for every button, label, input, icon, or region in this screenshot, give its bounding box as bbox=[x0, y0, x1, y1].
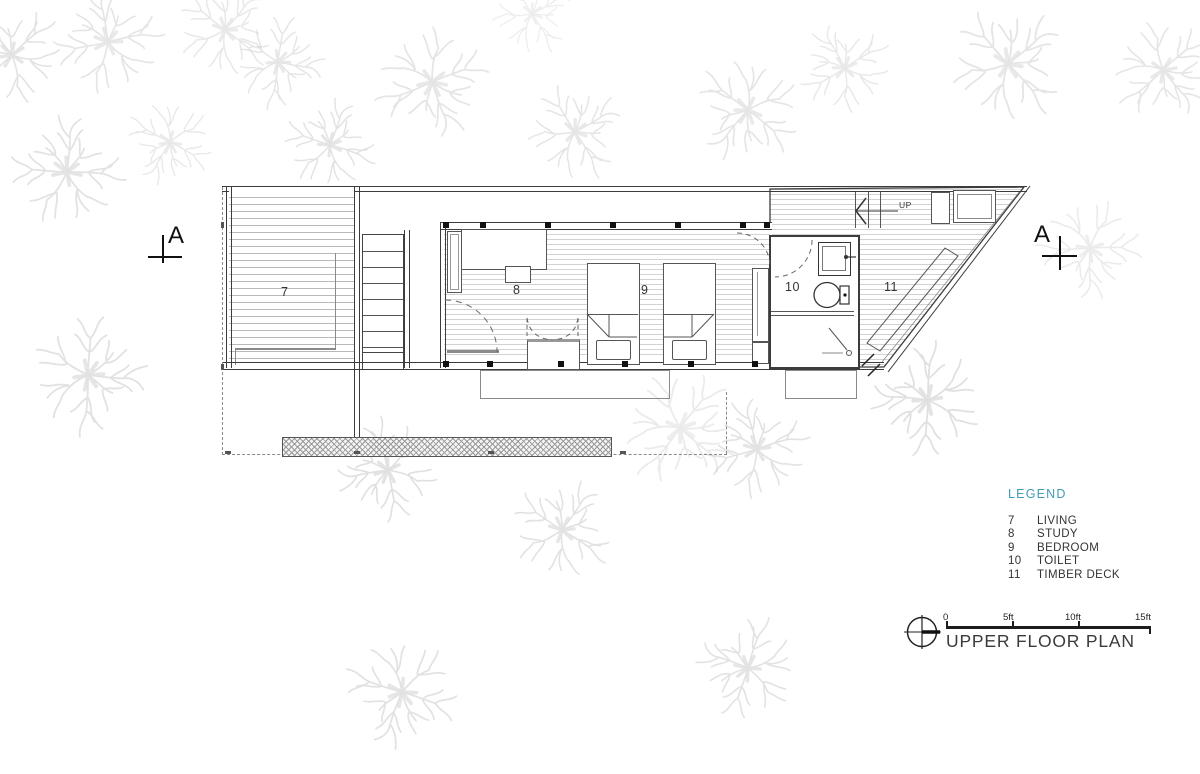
plan-title: UPPER FLOOR PLAN bbox=[946, 631, 1135, 652]
bedroom-wardrobe bbox=[752, 268, 769, 342]
tree-icon bbox=[12, 300, 160, 448]
study-door-leaf bbox=[447, 350, 499, 353]
stair-railing bbox=[404, 230, 410, 368]
room-label-toilet: 10 bbox=[785, 280, 800, 294]
tree-icon bbox=[798, 23, 894, 117]
room-label-bedroom: 9 bbox=[641, 283, 648, 297]
tree-icon bbox=[488, 0, 572, 57]
desk bbox=[461, 229, 547, 270]
stairs bbox=[362, 234, 404, 354]
sink bbox=[818, 242, 851, 276]
deck-bench bbox=[867, 248, 958, 351]
scale-bar bbox=[946, 626, 1151, 629]
floor-plan-canvas: 7 8 9 10 11 UP A A LEGEND 7 LIVING 8 STU… bbox=[0, 0, 1200, 774]
section-marker-left: A bbox=[168, 222, 184, 250]
section-cut-line bbox=[354, 187, 360, 437]
desk-chair bbox=[505, 266, 531, 283]
closet-base bbox=[527, 339, 580, 370]
legend-item: 8 STUDY bbox=[1008, 528, 1178, 541]
tree-icon bbox=[328, 408, 452, 533]
tree-icon bbox=[505, 475, 616, 587]
legend-item: 11 TIMBER DECK bbox=[1008, 569, 1178, 582]
tree-icon bbox=[174, 0, 273, 82]
tree-icon bbox=[954, 12, 1057, 118]
study-west-wall bbox=[440, 222, 446, 368]
shower-partition bbox=[771, 311, 854, 316]
legend-item: 7 LIVING bbox=[1008, 515, 1178, 528]
up-label: UP bbox=[899, 200, 912, 210]
deck-planter bbox=[931, 192, 950, 224]
tree-icon bbox=[1116, 23, 1200, 113]
tree-icon bbox=[523, 82, 622, 183]
site-boundary-east bbox=[726, 392, 728, 454]
deck-table bbox=[953, 190, 996, 223]
tree-icon bbox=[122, 91, 221, 191]
west-wall bbox=[226, 187, 232, 368]
bed-pillow bbox=[672, 340, 707, 360]
tree-icon bbox=[688, 607, 813, 731]
tree-icon bbox=[367, 16, 496, 144]
room-label-deck: 11 bbox=[884, 280, 898, 294]
living-bench-edge bbox=[235, 348, 336, 350]
living-room-floor bbox=[229, 191, 355, 365]
tree-icon bbox=[335, 621, 471, 758]
room-label-living: 7 bbox=[281, 285, 288, 299]
up-arrow-icon bbox=[856, 198, 866, 224]
tree-icon bbox=[696, 391, 817, 511]
lower-floor-outline bbox=[785, 370, 857, 399]
desk-cabinet bbox=[447, 231, 462, 293]
scale-tick-label: 15ft bbox=[1135, 612, 1151, 623]
gravel-path bbox=[282, 437, 612, 457]
bed-pillow bbox=[596, 340, 631, 360]
tree-icon bbox=[0, 12, 59, 102]
section-marker-right: A bbox=[1034, 221, 1050, 249]
living-bench-back bbox=[335, 253, 336, 349]
legend: LEGEND 7 LIVING 8 STUDY 9 BEDROOM 10 TOI… bbox=[1008, 487, 1178, 582]
lower-floor-outline bbox=[480, 370, 670, 399]
legend-item: 9 BEDROOM bbox=[1008, 542, 1178, 555]
tree-icon bbox=[695, 53, 805, 165]
legend-heading: LEGEND bbox=[1008, 487, 1178, 501]
tree-icon bbox=[860, 330, 1002, 472]
room-label-study: 8 bbox=[513, 283, 520, 297]
north-symbol-icon bbox=[904, 615, 941, 649]
tree-icon bbox=[218, 4, 333, 119]
tree-icon bbox=[42, 0, 173, 109]
tree-icon bbox=[0, 104, 137, 246]
title-block: 0 5ft 10ft 15ft UPPER FLOOR PLAN bbox=[946, 612, 1186, 662]
legend-item: 10 TOILET bbox=[1008, 555, 1178, 568]
